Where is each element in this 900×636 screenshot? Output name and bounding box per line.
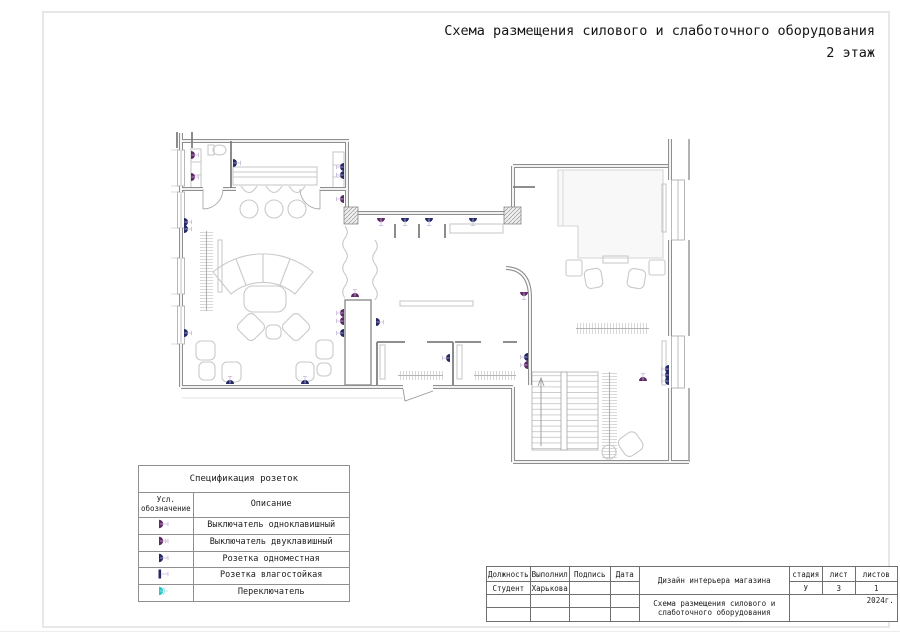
legend-label: Розетка одноместная	[193, 551, 349, 568]
door-swing	[300, 189, 320, 209]
tb-h-signature: Подпись	[569, 567, 610, 582]
table	[649, 260, 665, 275]
chair	[626, 268, 646, 290]
armchair	[316, 340, 333, 359]
armchair	[222, 362, 241, 382]
chair	[584, 268, 604, 290]
bar-stool	[265, 200, 283, 218]
drawing-sheet: Схема размещения силового и слаботочного…	[0, 0, 900, 636]
bar-counter	[233, 167, 317, 185]
legend-symbol-socket-wp	[139, 568, 194, 585]
floor-plan	[0, 0, 900, 636]
tb-h-date: Дата	[610, 567, 639, 582]
plan-symbol-switch-1	[337, 195, 345, 203]
display-shelf	[400, 301, 473, 306]
plan-symbol-switch-1	[639, 374, 647, 382]
plan-symbol-socket	[226, 377, 234, 385]
tb-year: 2024г.	[789, 595, 897, 622]
curtain	[343, 226, 348, 298]
plan-symbol-socket	[337, 171, 345, 179]
stairs	[532, 372, 598, 450]
plan-symbol-socket	[184, 218, 192, 226]
tb-h-executed: Выполнил	[530, 567, 569, 582]
plan-symbol-switch-1	[191, 151, 199, 159]
plan-symbol-socket	[233, 159, 241, 167]
tb-signature	[569, 582, 610, 595]
plan-symbol-socket	[376, 318, 384, 326]
armchair	[616, 429, 645, 458]
armchair	[235, 311, 266, 342]
tb-drawing-title: Схема размещения силового и слаботочного…	[639, 595, 789, 622]
furniture-top-left-block	[191, 145, 344, 218]
pillar	[504, 207, 521, 224]
tb-executed: Харькова	[530, 582, 569, 595]
tb-position: Студент	[487, 582, 531, 595]
plan-symbol-switch-2	[337, 317, 345, 325]
plan-symbol-socket	[184, 225, 192, 233]
column	[345, 300, 371, 385]
plan-symbol-switch-1	[521, 361, 529, 369]
legend-col2-header: Описание	[193, 493, 349, 518]
plan-symbol-switch-1	[337, 309, 345, 317]
toilet-bowl	[213, 145, 226, 155]
plan-symbol-socket	[425, 218, 433, 226]
legend-title: Спецификация розеток	[139, 466, 350, 493]
tb-project: Дизайн интерьера магазина	[639, 567, 789, 595]
armchair	[280, 311, 311, 342]
bar-stool	[288, 200, 306, 218]
side-table	[266, 325, 281, 339]
plan-symbol-switch-1	[351, 290, 359, 298]
pillar	[344, 207, 358, 224]
wall-shelf	[450, 224, 503, 233]
legend-label: Выключатель двуклавишный	[193, 534, 349, 551]
title-block: Должность Выполнил Подпись Дата Дизайн и…	[486, 566, 898, 622]
legend-symbol-switch-2	[139, 534, 194, 551]
tb-h-sheet: лист	[822, 567, 855, 582]
table	[566, 260, 582, 276]
plan-symbol-switch-1	[520, 292, 528, 300]
doors	[203, 189, 433, 401]
door-swing	[203, 189, 223, 209]
mirror	[380, 345, 385, 379]
tb-stage: У	[789, 582, 822, 595]
stair-stringer	[561, 372, 567, 450]
legend-table: Спецификация розеток Усл. обозначение Оп…	[138, 465, 350, 602]
plan-symbol-socket	[401, 218, 409, 226]
legend-label: Переключатель	[193, 585, 349, 602]
armchair	[196, 341, 215, 360]
legend-symbol-socket	[139, 551, 194, 568]
plan-symbol-socket	[184, 329, 192, 337]
plan-symbol-socket	[337, 163, 345, 171]
plan-symbol-socket	[301, 377, 309, 385]
plan-symbol-socket	[662, 377, 670, 385]
tb-h-sheets: листов	[855, 567, 897, 582]
legend-label: Розетка влагостойкая	[193, 568, 349, 585]
mirror	[457, 345, 462, 379]
tb-h-position: Должность	[487, 567, 531, 582]
tb-sheet: 3	[822, 582, 855, 595]
legend-symbol-toggle	[139, 585, 194, 602]
legend-label: Выключатель одноклавишный	[193, 518, 349, 535]
bar-stool	[240, 200, 258, 218]
curtain	[373, 240, 378, 300]
entrance-door-leaf	[403, 389, 433, 401]
tb-h-stage: стадия	[789, 567, 822, 582]
plan-symbol-socket	[521, 353, 529, 361]
side-table	[317, 363, 331, 376]
window-sill	[662, 341, 666, 385]
plan-symbol-switch-1	[377, 218, 385, 226]
coffee-table	[244, 286, 286, 312]
plan-symbol-switch-2	[191, 173, 199, 181]
tb-date	[610, 582, 639, 595]
plan-symbol-socket	[443, 354, 451, 362]
legend-symbol-switch-1	[139, 518, 194, 535]
plan-symbol-socket	[337, 329, 345, 337]
legend-col1-header: Усл. обозначение	[139, 493, 194, 518]
tb-sheets: 1	[855, 582, 897, 595]
armchair	[199, 362, 215, 380]
podium	[558, 170, 663, 258]
